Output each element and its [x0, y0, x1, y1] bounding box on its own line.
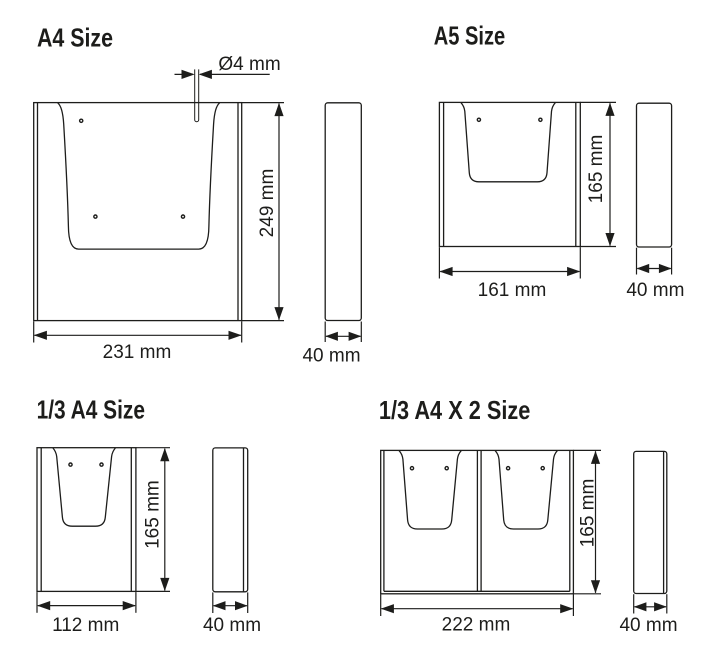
svg-text:1/3 A4 X 2 Size: 1/3 A4 X 2 Size — [379, 395, 531, 425]
svg-text:1/3 A4 Size: 1/3 A4 Size — [37, 395, 145, 425]
svg-text:Ø4 mm: Ø4 mm — [218, 54, 280, 75]
svg-text:A4 Size: A4 Size — [37, 22, 113, 52]
svg-text:A5 Size: A5 Size — [434, 21, 506, 51]
svg-text:112 mm: 112 mm — [52, 615, 119, 636]
svg-text:161 mm: 161 mm — [478, 280, 547, 301]
svg-text:40 mm: 40 mm — [203, 615, 261, 636]
svg-text:40 mm: 40 mm — [619, 615, 677, 636]
svg-text:40 mm: 40 mm — [626, 280, 684, 301]
svg-text:165 mm: 165 mm — [578, 479, 599, 548]
svg-text:165 mm: 165 mm — [143, 480, 164, 549]
svg-text:249 mm: 249 mm — [257, 169, 278, 238]
svg-text:40 mm: 40 mm — [302, 346, 360, 367]
svg-text:222 mm: 222 mm — [442, 615, 511, 636]
svg-text:231 mm: 231 mm — [103, 342, 172, 363]
svg-text:165 mm: 165 mm — [586, 135, 607, 204]
